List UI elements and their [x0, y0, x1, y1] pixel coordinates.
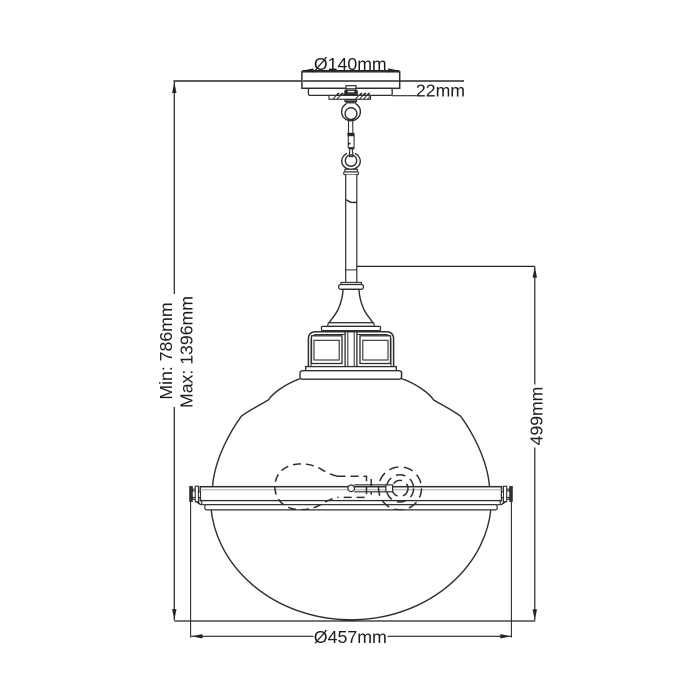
- svg-text:Ø140mm: Ø140mm: [314, 54, 387, 74]
- svg-text:499mm: 499mm: [527, 387, 547, 446]
- svg-text:Max: 1396mm: Max: 1396mm: [176, 296, 196, 408]
- svg-text:Ø457mm: Ø457mm: [314, 627, 387, 647]
- svg-text:Min: 786mm: Min: 786mm: [156, 302, 176, 399]
- svg-text:22mm: 22mm: [416, 81, 465, 101]
